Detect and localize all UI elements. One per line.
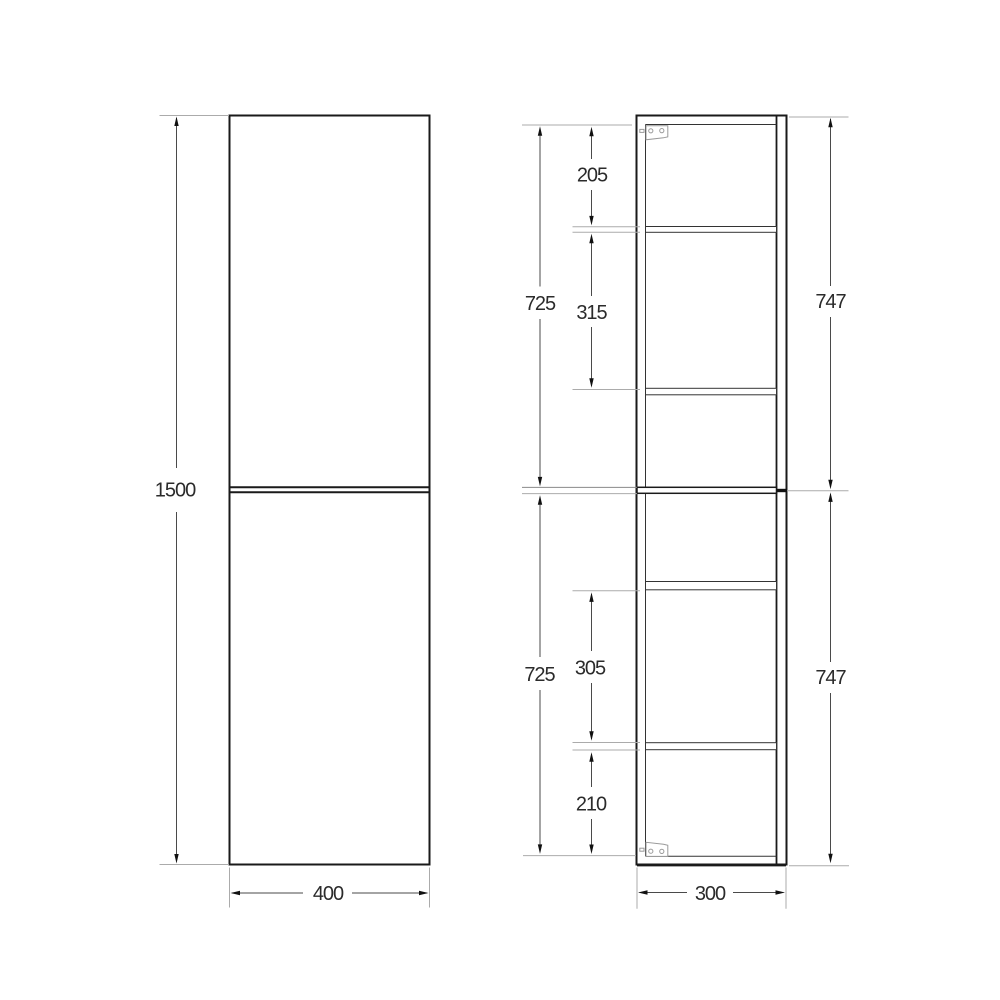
svg-text:315: 315: [576, 302, 607, 324]
svg-text:305: 305: [575, 658, 606, 680]
svg-text:205: 205: [577, 165, 608, 187]
svg-text:400: 400: [313, 883, 344, 905]
svg-text:300: 300: [695, 883, 726, 905]
svg-text:725: 725: [524, 664, 555, 686]
svg-text:747: 747: [815, 291, 846, 313]
svg-text:725: 725: [525, 293, 556, 315]
svg-text:210: 210: [576, 794, 607, 816]
svg-text:1500: 1500: [155, 480, 196, 502]
svg-text:747: 747: [815, 667, 846, 689]
